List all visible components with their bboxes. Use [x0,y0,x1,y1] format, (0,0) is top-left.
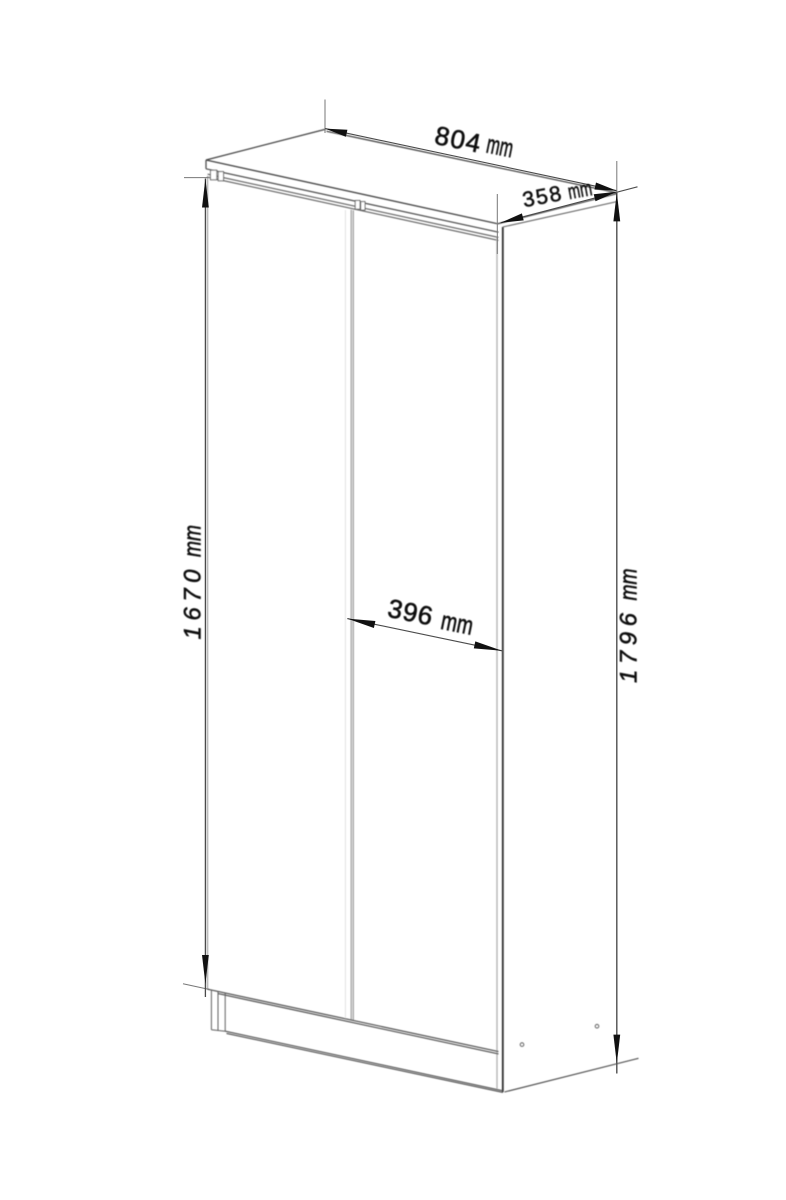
svg-text:mm: mm [180,525,207,557]
svg-text:mm: mm [439,605,476,641]
svg-text:mm: mm [566,176,594,204]
svg-text:mm: mm [616,569,643,601]
